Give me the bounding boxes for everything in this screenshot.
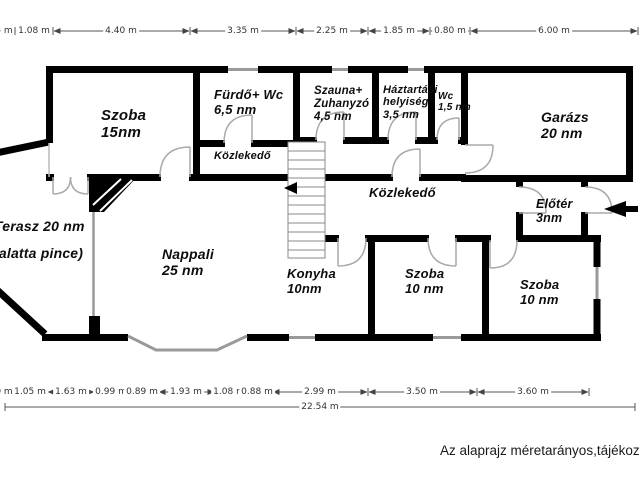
floorplan-canvas: Szoba15nm Fürdő+ Wc6,5 nm Szauna+Zuhanyz… <box>0 0 640 480</box>
room-label-nappali: Nappali25 nm <box>162 247 214 278</box>
fireplace <box>89 177 137 212</box>
dimension-label: 0.88 m <box>239 387 275 397</box>
dimension-label: 6.00 m <box>536 26 572 36</box>
dimension-label: 0.89 m <box>124 387 160 397</box>
scale-disclaimer-text: Az alaprajz méretarányos,tájékoz <box>440 443 640 458</box>
dimension-label-total: 22.54 m <box>299 402 340 412</box>
dimension-label: 4.40 m <box>103 26 139 36</box>
staircase <box>284 142 325 258</box>
room-label-konyha: Konyha10nm <box>287 267 336 296</box>
room-label-kozlekedo-main: Közlekedő <box>369 186 436 201</box>
room-label-terasz: Terasz 20 nm(alatta pince) <box>0 219 85 261</box>
dimension-label: 1.93 m <box>168 387 204 397</box>
room-label-haztartasi: Háztartásihelyiség3,5 nm <box>383 84 438 121</box>
dimension-label: 0.80 m <box>432 26 468 36</box>
dimension-label: 2.25 m <box>314 26 350 36</box>
dimension-label: 2.99 m <box>302 387 338 397</box>
room-label-eloter: Előtér3nm <box>536 197 573 225</box>
room-label-garazs: Garázs20 nm <box>541 110 589 141</box>
dimension-label: 3.35 m <box>225 26 261 36</box>
dimension-label: 3.50 m <box>404 387 440 397</box>
room-label-wc: Wc1,5 nm <box>438 91 471 113</box>
dimension-label: 3.60 m <box>515 387 551 397</box>
room-label-furdo-wc: Fürdő+ Wc6,5 nm <box>214 88 283 117</box>
dimension-label: 1.05 m <box>12 387 48 397</box>
room-label-szoba-mid: Szoba10 nm <box>405 267 444 296</box>
entrance-arrow-icon <box>604 201 638 217</box>
room-label-kozlekedo-small: Közlekedő <box>214 150 271 162</box>
dimension-label: 1.63 m <box>53 387 89 397</box>
room-label-szauna: Szauna+Zuhanyzó4,5 nm <box>314 85 369 124</box>
dimension-label: 1.08 m <box>16 26 52 36</box>
dimension-label: 5 m <box>0 26 15 36</box>
room-label-szoba-15: Szoba15nm <box>101 108 146 142</box>
room-label-szoba-right: Szoba10 nm <box>520 278 559 307</box>
window-posts <box>89 316 100 338</box>
dimension-label: 1.85 m <box>381 26 417 36</box>
